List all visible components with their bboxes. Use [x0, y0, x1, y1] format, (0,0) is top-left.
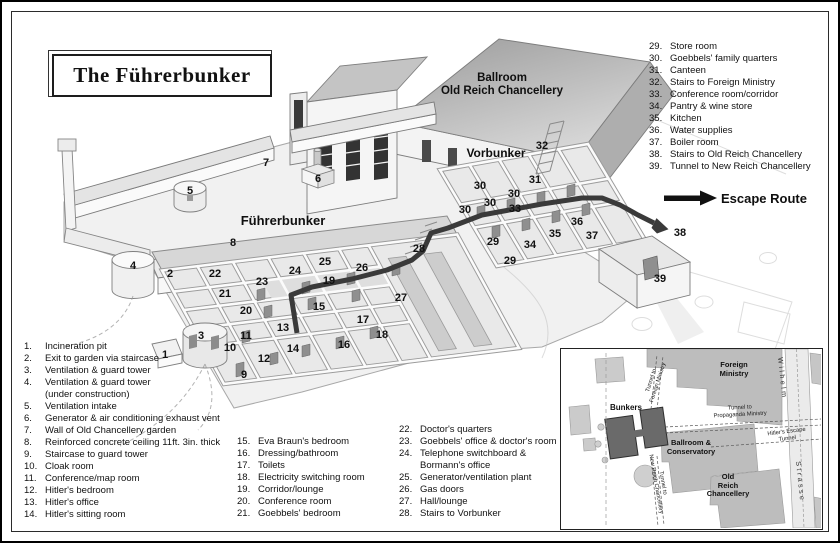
legend-item-label: Toilets	[258, 460, 399, 472]
legend-item-label: Hitler's office	[45, 497, 262, 509]
room-number-38: 38	[674, 227, 686, 239]
legend-item-number: 29.	[649, 41, 670, 53]
legend-item-31: 31.Canteen	[649, 65, 840, 77]
room-number-39: 39	[654, 273, 666, 285]
legend-item-3: 3.Ventilation & guard tower	[24, 365, 262, 377]
legend-item-8: 8.Reinforced concrete ceiling 11ft. 3in.…	[24, 437, 262, 449]
legend-column-3: 22.Doctor's quarters23.Goebbels' office …	[399, 424, 577, 520]
legend-item-label: Store room	[670, 41, 840, 53]
room-number-28: 28	[413, 243, 425, 255]
legend-item-label: Telephone switchboard & Bormann's office	[420, 448, 577, 472]
legend-item-18: 18.Electricity switching room	[237, 472, 399, 484]
legend-item-30: 30.Goebbels' family quarters	[649, 53, 840, 65]
legend-item-number: 39.	[649, 161, 670, 173]
legend-item-number: 25.	[399, 472, 420, 484]
legend-item-number: 38.	[649, 149, 670, 161]
legend-item-label: Ventilation & guard tower	[45, 365, 262, 377]
legend-item-label: Corridor/lounge	[258, 484, 399, 496]
room-number-25: 25	[319, 256, 331, 268]
legend-item-35: 35.Kitchen	[649, 113, 840, 125]
legend-item-number: 2.	[24, 353, 45, 365]
room-number-29: 29	[504, 255, 516, 267]
fuhrerbunker-diagram-page: 1234567891011121314151617181920212223242…	[0, 0, 840, 543]
legend-item-number: 9.	[24, 449, 45, 461]
room-number-27: 27	[395, 292, 407, 304]
legend-item-label: Stairs to Foreign Ministry	[670, 77, 840, 89]
legend-item-label: Boiler room	[670, 137, 840, 149]
legend-item-number: 11.	[24, 473, 45, 485]
legend-item-label: Ventilation & guard tower (under constru…	[45, 377, 262, 401]
legend-item-label: Exit to garden via staircase	[45, 353, 262, 365]
legend-item-37: 37.Boiler room	[649, 137, 840, 149]
legend-item-39: 39.Tunnel to New Reich Chancellery	[649, 161, 840, 173]
legend-item-12: 12.Hitler's bedroom	[24, 485, 262, 497]
legend-item-32: 32.Stairs to Foreign Ministry	[649, 77, 840, 89]
legend-item-28: 28.Stairs to Vorbunker	[399, 508, 577, 520]
room-number-26: 26	[356, 262, 368, 274]
room-number-34: 34	[524, 239, 537, 251]
legend-item-34: 34.Pantry & wine store	[649, 101, 840, 113]
legend-item-15: 15.Eva Braun's bedroom	[237, 436, 399, 448]
door-icon	[270, 352, 278, 365]
legend-item-29: 29.Store room	[649, 41, 840, 53]
legend-item-number: 27.	[399, 496, 420, 508]
room-number-24: 24	[289, 265, 302, 277]
room-number-30: 30	[484, 197, 496, 209]
legend-item-22: 22.Doctor's quarters	[399, 424, 577, 436]
legend-item-23: 23.Goebbels' office & doctor's room	[399, 436, 577, 448]
legend-item-label: Dressing/bathroom	[258, 448, 399, 460]
legend-item-19: 19.Corridor/lounge	[237, 484, 399, 496]
legend-item-10: 10.Cloak room	[24, 461, 262, 473]
legend-item-17: 17.Toilets	[237, 460, 399, 472]
fuhrerbunker-label: Führerbunker	[205, 213, 361, 228]
legend-item-number: 23.	[399, 436, 420, 448]
room-number-8: 8	[230, 237, 236, 249]
exit-structure	[599, 236, 704, 344]
legend-item-number: 21.	[237, 508, 258, 520]
legend-item-label: Electricity switching room	[258, 472, 399, 484]
inset-ballroom-label: Ballroom & Conservatory	[654, 439, 728, 456]
room-number-18: 18	[376, 329, 388, 341]
room-number-31: 31	[529, 174, 541, 186]
legend-item-label: Hall/lounge	[420, 496, 577, 508]
legend-item-number: 24.	[399, 448, 420, 472]
legend-item-label: Pantry & wine store	[670, 101, 840, 113]
legend-item-21: 21.Goebbels' bedroom	[237, 508, 399, 520]
legend-item-label: Staircase to guard tower	[45, 449, 262, 461]
legend-item-number: 7.	[24, 425, 45, 437]
legend-item-label: Goebbels' office & doctor's room	[420, 436, 577, 448]
legend-item-label: Doctor's quarters	[420, 424, 577, 436]
legend-item-label: Ventilation intake	[45, 401, 262, 413]
door-icon	[302, 344, 310, 357]
legend-item-24: 24.Telephone switchboard & Bormann's off…	[399, 448, 577, 472]
room-number-22: 22	[209, 268, 221, 280]
inset-old-reich-label: Old Reich Chancellery	[699, 473, 757, 499]
legend-item-number: 8.	[24, 437, 45, 449]
legend-item-number: 14.	[24, 509, 45, 521]
legend-item-number: 26.	[399, 484, 420, 496]
legend-item-label: Water supplies	[670, 125, 840, 137]
legend-item-label: Eva Braun's bedroom	[258, 436, 399, 448]
door-icon	[567, 184, 575, 197]
legend-item-label: Generator/ventilation plant	[420, 472, 577, 484]
legend-item-label: Conference room/corridor	[670, 89, 840, 101]
legend-item-33: 33.Conference room/corridor	[649, 89, 840, 101]
legend-item-number: 30.	[649, 53, 670, 65]
room-number-35: 35	[549, 228, 561, 240]
room-number-29: 29	[487, 236, 499, 248]
legend-item-label: Goebbels' bedroom	[258, 508, 399, 520]
inset-map: Foreign Ministry Wilhelm Strasse Bunkers…	[560, 348, 823, 530]
room-number-16: 16	[338, 339, 350, 351]
legend-item-label: Conference room	[258, 496, 399, 508]
legend-item-4: 4.Ventilation & guard tower (under const…	[24, 377, 262, 401]
room-number-36: 36	[571, 216, 583, 228]
legend-item-number: 16.	[237, 448, 258, 460]
escape-route-arrow	[664, 191, 717, 206]
legend-item-label: Cloak room	[45, 461, 262, 473]
legend-item-36: 36.Water supplies	[649, 125, 840, 137]
legend-item-label: Goebbels' family quarters	[670, 53, 840, 65]
escape-route-label: Escape Route	[721, 191, 840, 206]
room-number-30: 30	[508, 188, 520, 200]
legend-item-number: 1.	[24, 341, 45, 353]
legend-item-number: 31.	[649, 65, 670, 77]
room-number-23: 23	[256, 276, 268, 288]
legend-item-number: 5.	[24, 401, 45, 413]
legend-item-label: Kitchen	[670, 113, 840, 125]
legend-item-number: 12.	[24, 485, 45, 497]
legend-item-27: 27.Hall/lounge	[399, 496, 577, 508]
door-icon	[264, 305, 272, 318]
room-number-30: 30	[474, 180, 486, 192]
legend-item-16: 16.Dressing/bathroom	[237, 448, 399, 460]
legend-item-14: 14.Hitler's sitting room	[24, 509, 262, 521]
room-number-30: 30	[459, 204, 471, 216]
legend-item-label: Wall of Old Chancellery garden	[45, 425, 262, 437]
legend-item-20: 20.Conference room	[237, 496, 399, 508]
legend-item-label: Tunnel to New Reich Chancellery	[670, 161, 840, 173]
legend-item-label: Stairs to Vorbunker	[420, 508, 577, 520]
room-number-19: 19	[323, 275, 335, 287]
legend-item-11: 11.Conference/map room	[24, 473, 262, 485]
legend-item-label: Incineration pit	[45, 341, 262, 353]
vorbunker-label: Vorbunker	[449, 146, 543, 160]
legend-item-5: 5.Ventilation intake	[24, 401, 262, 413]
door-icon	[257, 288, 265, 301]
legend-item-number: 4.	[24, 377, 45, 401]
legend-item-label: Generator & air conditioning exhaust ven…	[45, 413, 262, 425]
room-number-17: 17	[357, 314, 369, 326]
door-icon	[552, 210, 560, 223]
legend-item-number: 10.	[24, 461, 45, 473]
legend-item-number: 36.	[649, 125, 670, 137]
legend-item-2: 2.Exit to garden via staircase	[24, 353, 262, 365]
title-box: The Führerbunker	[48, 50, 272, 97]
room-number-33: 33	[509, 203, 521, 215]
room-number-6: 6	[315, 173, 321, 185]
legend-item-number: 22.	[399, 424, 420, 436]
legend-item-label: Canteen	[670, 65, 840, 77]
legend-item-number: 17.	[237, 460, 258, 472]
door-icon	[582, 203, 590, 216]
legend-item-number: 18.	[237, 472, 258, 484]
room-number-5: 5	[187, 185, 193, 197]
legend-item-26: 26.Gas doors	[399, 484, 577, 496]
legend-item-label: Gas doors	[420, 484, 577, 496]
legend-item-number: 6.	[24, 413, 45, 425]
room-number-20: 20	[240, 305, 252, 317]
door-icon	[352, 289, 360, 302]
ballroom-label: Ballroom Old Reich Chancellery	[420, 72, 584, 98]
legend-item-number: 33.	[649, 89, 670, 101]
legend-item-label: Conference/map room	[45, 473, 262, 485]
room-number-15: 15	[313, 301, 325, 313]
inset-foreign-ministry-label: Foreign Ministry	[701, 361, 767, 378]
legend-item-6: 6.Generator & air conditioning exhaust v…	[24, 413, 262, 425]
legend-item-number: 28.	[399, 508, 420, 520]
legend-item-1: 1.Incineration pit	[24, 341, 262, 353]
page-title: The Führerbunker	[52, 54, 272, 97]
legend-item-label: Reinforced concrete ceiling 11ft. 3in. t…	[45, 437, 262, 449]
room-number-7: 7	[263, 157, 269, 169]
legend-item-label: Hitler's bedroom	[45, 485, 262, 497]
legend-item-13: 13.Hitler's office	[24, 497, 262, 509]
legend-item-label: Hitler's sitting room	[45, 509, 262, 521]
legend-item-number: 37.	[649, 137, 670, 149]
legend-item-number: 13.	[24, 497, 45, 509]
legend-item-25: 25.Generator/ventilation plant	[399, 472, 577, 484]
legend-column-1: 1.Incineration pit2.Exit to garden via s…	[24, 341, 262, 521]
legend-item-7: 7.Wall of Old Chancellery garden	[24, 425, 262, 437]
legend-item-label: Stairs to Old Reich Chancellery	[670, 149, 840, 161]
room-number-2: 2	[167, 268, 173, 280]
room-number-21: 21	[219, 288, 231, 300]
ventilation-tower-4	[112, 252, 154, 299]
door-icon	[522, 218, 530, 231]
legend-item-number: 19.	[237, 484, 258, 496]
legend-item-number: 34.	[649, 101, 670, 113]
legend-item-number: 35.	[649, 113, 670, 125]
legend-item-number: 15.	[237, 436, 258, 448]
legend-item-38: 38.Stairs to Old Reich Chancellery	[649, 149, 840, 161]
room-number-13: 13	[277, 322, 289, 334]
legend-item-9: 9.Staircase to guard tower	[24, 449, 262, 461]
legend-item-number: 20.	[237, 496, 258, 508]
room-number-37: 37	[586, 230, 598, 242]
legend-column-4: 29.Store room30.Goebbels' family quarter…	[649, 41, 840, 173]
legend-item-number: 32.	[649, 77, 670, 89]
room-number-14: 14	[287, 343, 300, 355]
legend-column-2: 15.Eva Braun's bedroom16.Dressing/bathro…	[237, 436, 399, 520]
legend-item-number: 3.	[24, 365, 45, 377]
room-number-4: 4	[130, 260, 137, 272]
